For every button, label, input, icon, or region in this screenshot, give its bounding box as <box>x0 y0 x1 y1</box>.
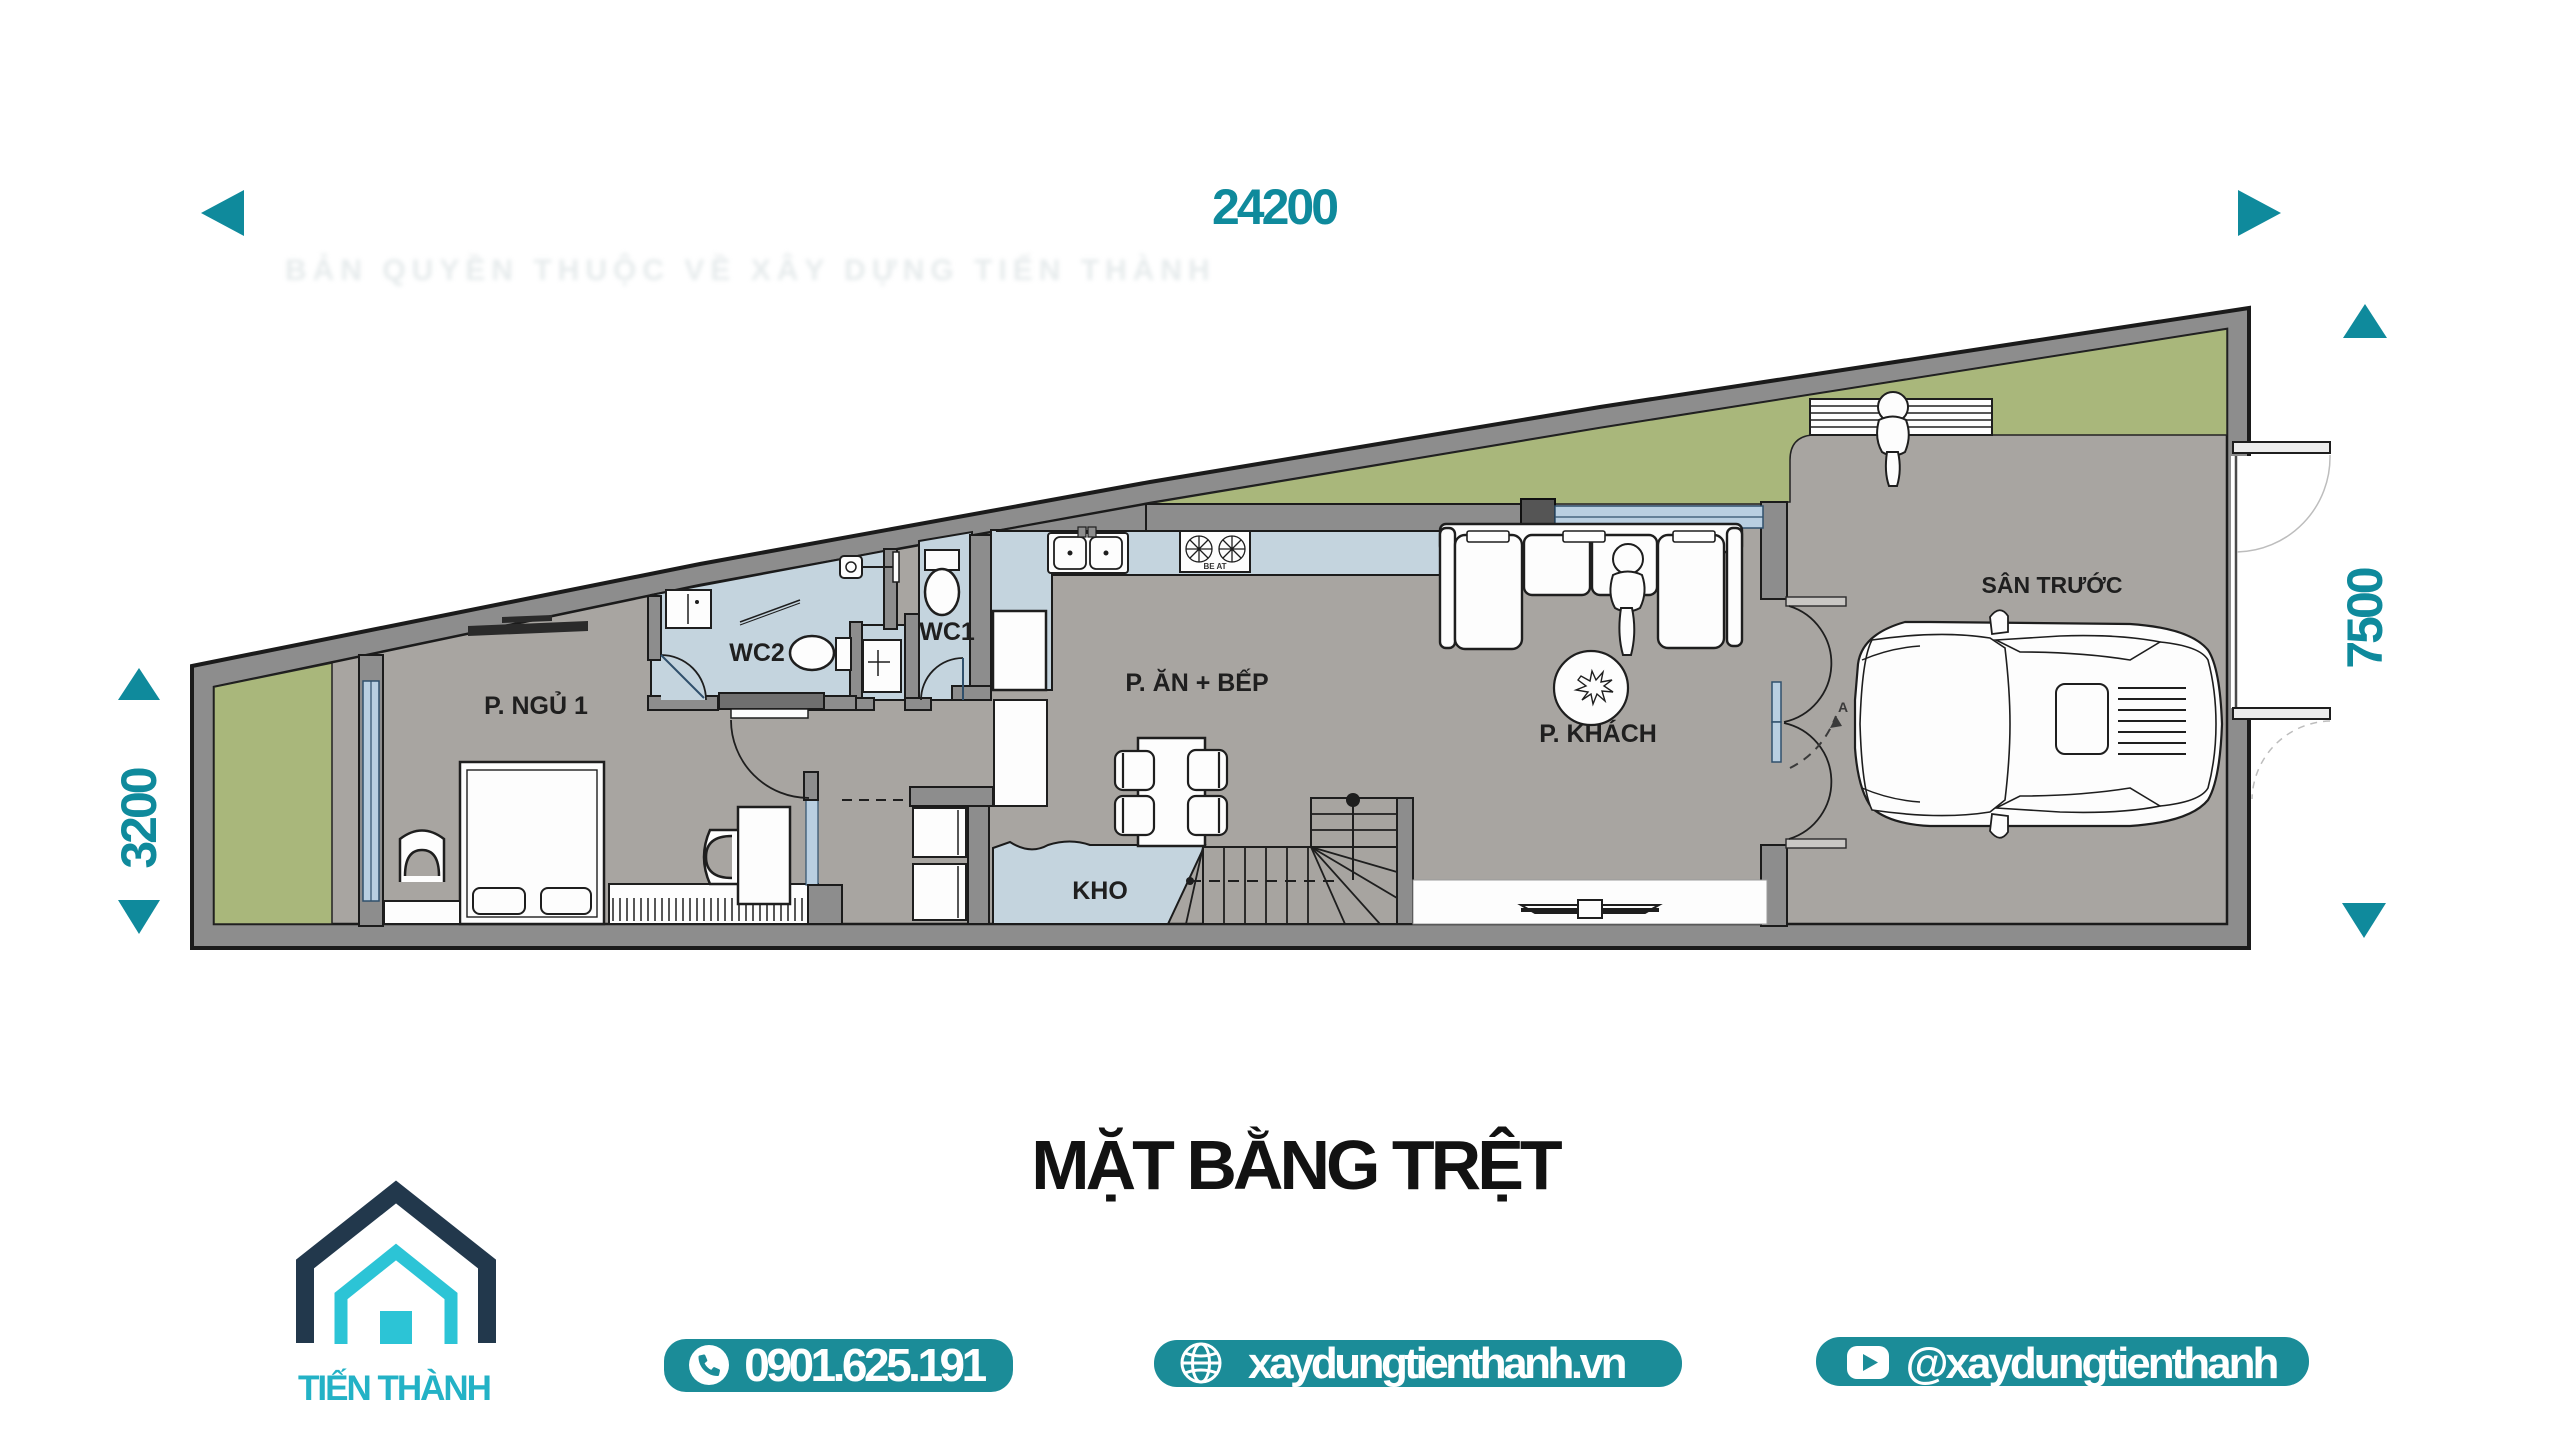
svg-text:A: A <box>1838 699 1848 715</box>
svg-text:KHO: KHO <box>1072 877 1128 905</box>
svg-text:P. KHÁCH: P. KHÁCH <box>1539 719 1657 748</box>
svg-text:WC2: WC2 <box>729 639 785 667</box>
svg-text:24200: 24200 <box>1212 179 1337 235</box>
svg-text:WC1: WC1 <box>919 618 975 646</box>
svg-text:TIẾN THÀNH: TIẾN THÀNH <box>298 1368 490 1408</box>
svg-text:xaydungtienthanh.vn: xaydungtienthanh.vn <box>1248 1339 1626 1388</box>
svg-text:7500: 7500 <box>2337 568 2393 668</box>
svg-text:3200: 3200 <box>111 768 167 868</box>
svg-text:BẢN QUYỀN THUỘC VỀ XÂY DỰNG TI: BẢN QUYỀN THUỘC VỀ XÂY DỰNG TIẾN THÀNH <box>285 253 1216 287</box>
svg-text:P. NGỦ 1: P. NGỦ 1 <box>484 690 588 720</box>
svg-text:BE AT: BE AT <box>1203 562 1226 571</box>
svg-text:@xaydungtienthanh: @xaydungtienthanh <box>1906 1339 2278 1388</box>
svg-text:P. ĂN + BẾP: P. ĂN + BẾP <box>1125 668 1268 697</box>
svg-text:SÂN TRƯỚC: SÂN TRƯỚC <box>1982 571 2123 598</box>
svg-text:MẶT BẰNG TRỆT: MẶT BẰNG TRỆT <box>1031 1125 1562 1204</box>
svg-text:0901.625.191: 0901.625.191 <box>744 1339 986 1391</box>
